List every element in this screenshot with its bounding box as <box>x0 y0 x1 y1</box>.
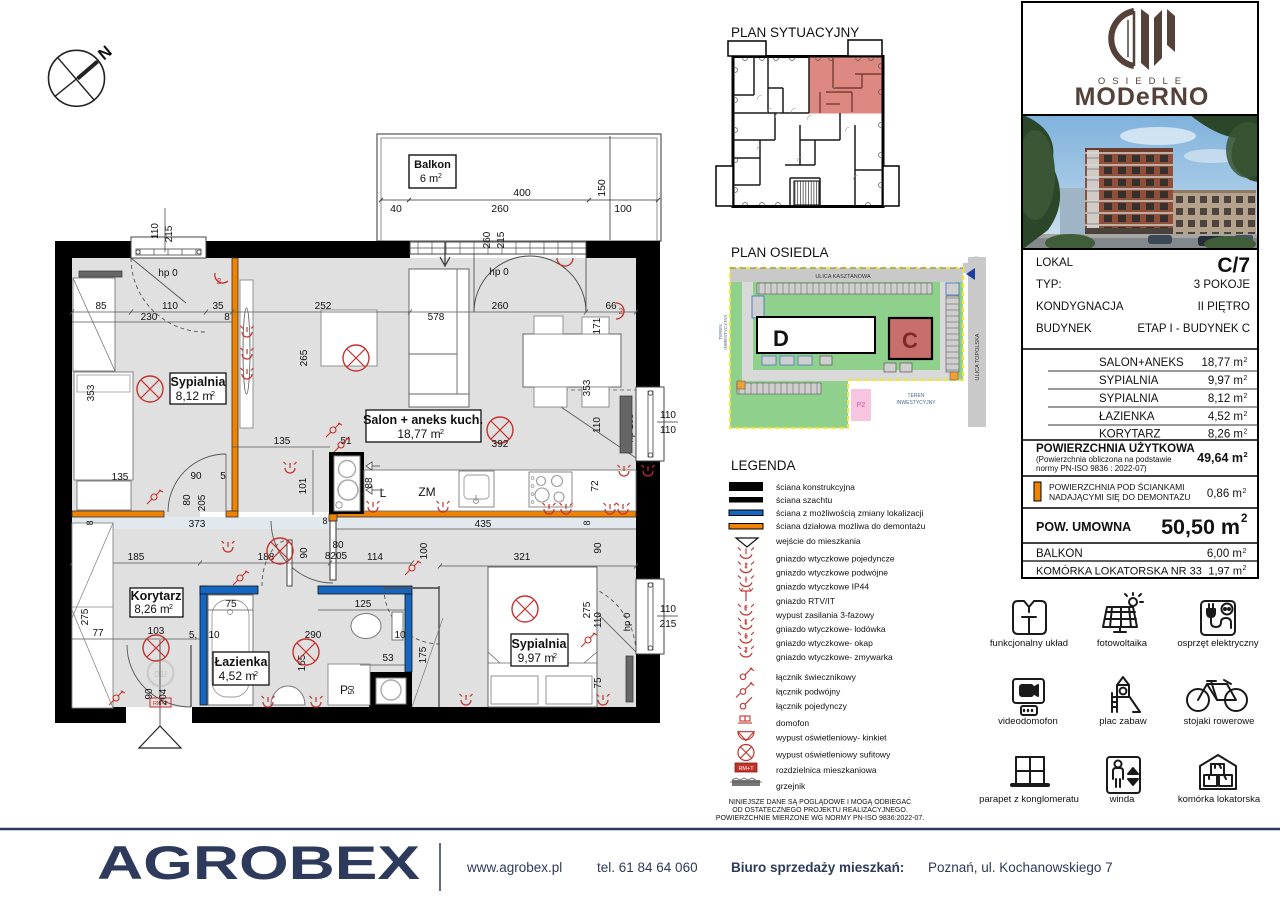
svg-text:L: L <box>380 486 387 500</box>
svg-text:wypust oświetleniowy sufitowy: wypust oświetleniowy sufitowy <box>775 750 891 760</box>
svg-text:8,26 m: 8,26 m <box>1208 429 1243 441</box>
svg-text:PLAN SYTUACYJNY: PLAN SYTUACYJNY <box>731 25 859 40</box>
svg-text:2: 2 <box>1244 357 1248 364</box>
svg-text:funkcjonalny układ: funkcjonalny układ <box>990 638 1068 649</box>
svg-text:2: 2 <box>553 651 557 660</box>
svg-text:C/7: C/7 <box>1217 254 1250 277</box>
svg-text:SYPIALNIA: SYPIALNIA <box>1099 393 1159 405</box>
svg-text:215: 215 <box>164 225 175 242</box>
svg-text:80: 80 <box>182 494 193 506</box>
svg-text:~: ~ <box>744 577 748 584</box>
svg-text:łącznik świecznikowy: łącznik świecznikowy <box>776 672 857 682</box>
svg-text:AGROBEX: AGROBEX <box>97 836 420 889</box>
svg-text:110: 110 <box>593 612 604 628</box>
svg-text:łącznik pojedynczy: łącznik pojedynczy <box>776 701 848 711</box>
svg-text:265: 265 <box>299 349 310 366</box>
svg-text:2: 2 <box>1244 429 1248 436</box>
svg-text:ściana działowa możliwa do dem: ściana działowa możliwa do demontażu <box>776 521 926 531</box>
svg-text:PLAN OSIEDLA: PLAN OSIEDLA <box>731 245 829 260</box>
svg-text:50: 50 <box>347 685 356 694</box>
svg-text:353: 353 <box>86 384 97 401</box>
svg-text:wypust zasilania 3-fazowy: wypust zasilania 3-fazowy <box>775 610 875 620</box>
svg-text:110: 110 <box>660 604 676 615</box>
svg-text:135: 135 <box>274 436 291 447</box>
svg-text:D1l: D1l <box>154 670 166 679</box>
svg-text:260: 260 <box>491 203 509 215</box>
svg-text:BALKON: BALKON <box>1036 548 1083 560</box>
svg-text:Biuro sprzedaży mieszkań:: Biuro sprzedaży mieszkań: <box>731 860 904 875</box>
svg-text:2: 2 <box>744 563 748 570</box>
svg-text:2: 2 <box>619 307 624 316</box>
svg-text:ETAP I - BUDYNEK C: ETAP I - BUDYNEK C <box>1137 323 1250 335</box>
svg-text:o: o <box>744 633 748 640</box>
svg-text:100: 100 <box>419 542 430 559</box>
svg-text:110: 110 <box>150 223 161 239</box>
svg-text:205: 205 <box>197 494 208 511</box>
svg-text:Poznań, ul. Kochanowskiego 7: Poznań, ul. Kochanowskiego 7 <box>928 860 1113 875</box>
svg-text:80: 80 <box>332 540 344 551</box>
svg-text:114: 114 <box>367 552 383 563</box>
svg-text:275: 275 <box>582 601 593 618</box>
svg-text:normy PN-ISO 9836 : 2022-07): normy PN-ISO 9836 : 2022-07) <box>1036 464 1147 473</box>
svg-text:2: 2 <box>169 604 173 611</box>
svg-text:8205: 8205 <box>325 551 348 562</box>
svg-text:260: 260 <box>492 301 509 312</box>
svg-text:stojaki rowerowe: stojaki rowerowe <box>1184 716 1255 727</box>
svg-text:72: 72 <box>590 480 601 492</box>
svg-text:2: 2 <box>254 669 258 678</box>
svg-text:5: 5 <box>220 471 226 482</box>
svg-text:gniazdo wtyczkowe- zmywarka: gniazdo wtyczkowe- zmywarka <box>776 652 893 662</box>
svg-text:4,52 m: 4,52 m <box>1208 411 1243 423</box>
svg-text:49,64 m: 49,64 m <box>1197 451 1243 465</box>
svg-text:171: 171 <box>592 317 603 334</box>
svg-text:8,12 m: 8,12 m <box>176 389 213 403</box>
svg-text:101: 101 <box>298 477 309 494</box>
svg-text:gniazdo wtyczkowe podwójne: gniazdo wtyczkowe podwójne <box>776 568 888 578</box>
svg-text:wejście do mieszkania: wejście do mieszkania <box>775 536 861 546</box>
svg-text:KONDYGNACJA: KONDYGNACJA <box>1036 301 1124 313</box>
svg-text:gniazdo wtyczkowe- okap: gniazdo wtyczkowe- okap <box>776 638 873 648</box>
svg-text:Sypialnia: Sypialnia <box>171 375 227 389</box>
svg-text:BUDYNEK: BUDYNEK <box>1036 323 1092 335</box>
svg-text:TYP:: TYP: <box>1036 279 1062 291</box>
svg-text:winda: winda <box>1109 794 1136 805</box>
svg-text:110: 110 <box>592 417 603 433</box>
svg-text:Z: Z <box>744 647 748 654</box>
svg-text:8: 8 <box>322 516 327 526</box>
svg-text:18,77 m: 18,77 m <box>1201 357 1243 369</box>
svg-text:ULICA TOPOLSKA: ULICA TOPOLSKA <box>975 333 981 380</box>
svg-text:RM+T: RM+T <box>738 766 754 772</box>
svg-text:L: L <box>744 619 748 626</box>
svg-text:85: 85 <box>95 301 107 312</box>
svg-text:2: 2 <box>1243 488 1247 495</box>
svg-text:35: 35 <box>212 301 224 312</box>
svg-text:4,52 m: 4,52 m <box>219 669 256 683</box>
svg-text:II PIĘTRO: II PIĘTRO <box>1198 301 1250 313</box>
svg-text:INWESTYCYJNY: INWESTYCYJNY <box>723 314 728 349</box>
svg-text:C: C <box>902 328 918 353</box>
svg-text:ściana szachtu: ściana szachtu <box>776 495 832 505</box>
svg-text:9,97 m: 9,97 m <box>518 651 555 665</box>
svg-text:10: 10 <box>394 630 406 641</box>
svg-text:ściana z możliwością zmiany lo: ściana z możliwością zmiany lokalizacji <box>776 508 923 518</box>
svg-text:373: 373 <box>189 519 206 530</box>
svg-text:fotowoltaika: fotowoltaika <box>1097 638 1148 649</box>
svg-text:Łazienka: Łazienka <box>215 655 269 669</box>
svg-text:100: 100 <box>614 203 632 215</box>
svg-text:353: 353 <box>582 379 593 396</box>
svg-text:6 m: 6 m <box>420 173 438 185</box>
svg-text:SALON+ANEKS: SALON+ANEKS <box>1099 357 1184 369</box>
svg-text:MODeRNO: MODeRNO <box>1075 83 1210 111</box>
svg-text:SYPIALNIA: SYPIALNIA <box>1099 375 1159 387</box>
svg-text:POW. UMOWNA: POW. UMOWNA <box>1036 520 1131 534</box>
svg-text:252: 252 <box>315 301 332 312</box>
svg-text:domofon: domofon <box>776 718 809 728</box>
svg-text:NADAJĄCYMI SIĘ DO DEMONTAŻU: NADAJĄCYMI SIĘ DO DEMONTAŻU <box>1049 492 1191 502</box>
svg-text:8: 8 <box>85 520 95 525</box>
svg-text:230: 230 <box>141 312 158 323</box>
svg-text:88: 88 <box>364 477 375 489</box>
svg-text:INWESTYCYJNY: INWESTYCYJNY <box>896 400 936 406</box>
svg-text:215: 215 <box>496 231 507 248</box>
svg-text:POWIERZCHNIE MIERZONE WG NORMY: POWIERZCHNIE MIERZONE WG NORMY PN-ISO 98… <box>716 815 924 822</box>
svg-text:215: 215 <box>660 619 677 630</box>
svg-text:2: 2 <box>440 427 444 436</box>
svg-text:175: 175 <box>418 646 429 663</box>
svg-text:KORYTARZ: KORYTARZ <box>1099 429 1161 441</box>
svg-text:hp 0: hp 0 <box>158 268 178 279</box>
svg-text:8: 8 <box>582 520 592 525</box>
svg-text:Korytarz: Korytarz <box>131 589 182 603</box>
svg-text:50,50 m: 50,50 m <box>1161 515 1240 539</box>
svg-text:gniazdo wtyczkowe pojedyncze: gniazdo wtyczkowe pojedyncze <box>776 553 895 563</box>
svg-text:6,00 m: 6,00 m <box>1207 548 1242 560</box>
svg-text:1,97 m: 1,97 m <box>1208 566 1242 578</box>
svg-text:150: 150 <box>596 179 608 197</box>
svg-text:2: 2 <box>1244 393 1248 400</box>
svg-text:gniazdo wtyczkowe IP44: gniazdo wtyczkowe IP44 <box>776 582 869 592</box>
svg-text:75: 75 <box>593 677 604 689</box>
svg-text:75: 75 <box>225 599 237 610</box>
svg-text:400: 400 <box>513 187 531 199</box>
svg-text:ZM: ZM <box>418 485 435 499</box>
svg-text:rozdzielnica mieszkaniowa: rozdzielnica mieszkaniowa <box>776 765 877 775</box>
svg-text:185: 185 <box>128 552 145 563</box>
svg-text:2: 2 <box>211 389 215 398</box>
svg-text:grzejnik: grzejnik <box>776 781 806 791</box>
svg-text:77: 77 <box>92 628 104 639</box>
svg-text:18,77 m: 18,77 m <box>397 427 440 441</box>
svg-text:LEGENDA: LEGENDA <box>731 458 796 473</box>
svg-text:hp 0: hp 0 <box>489 267 509 278</box>
svg-text:90: 90 <box>190 471 202 482</box>
svg-text:osprzęt elektryczny: osprzęt elektryczny <box>1177 638 1259 649</box>
svg-text:321: 321 <box>514 552 531 563</box>
svg-text:435: 435 <box>475 519 492 530</box>
svg-text:2: 2 <box>1244 375 1248 382</box>
svg-text:NINIEJSZE DANE SĄ POGLĄDOWE I: NINIEJSZE DANE SĄ POGLĄDOWE I MOGĄ ODBIE… <box>729 797 911 806</box>
svg-text:110: 110 <box>660 425 676 436</box>
svg-text:2: 2 <box>438 173 442 180</box>
svg-text:F: F <box>744 605 748 612</box>
svg-text:110: 110 <box>660 410 676 421</box>
svg-text:Salon + aneks kuch.: Salon + aneks kuch. <box>363 413 483 427</box>
svg-text:3 POKOJE: 3 POKOJE <box>1194 279 1251 291</box>
svg-text:D: D <box>773 326 789 351</box>
svg-text:gniazdo RTV/IT: gniazdo RTV/IT <box>776 596 835 606</box>
svg-text:gniazdo wtyczkowe- lodówka: gniazdo wtyczkowe- lodówka <box>776 624 886 634</box>
svg-text:578: 578 <box>428 312 445 323</box>
svg-text:135: 135 <box>112 472 129 483</box>
svg-text:2: 2 <box>1244 450 1248 459</box>
svg-text:P2: P2 <box>857 402 866 409</box>
svg-text:komórka lokatorska: komórka lokatorska <box>1178 794 1261 805</box>
svg-text:Balkon: Balkon <box>414 159 451 171</box>
svg-text:wypust oświetleniowy- kinkiet: wypust oświetleniowy- kinkiet <box>775 733 887 743</box>
svg-text:125: 125 <box>355 599 372 610</box>
svg-text:tel. 61 84 64 060: tel. 61 84 64 060 <box>597 860 698 875</box>
svg-text:videodomofon: videodomofon <box>998 716 1058 727</box>
svg-text:8: 8 <box>224 312 230 323</box>
svg-text:2: 2 <box>1243 565 1247 572</box>
svg-text:TEREN: TEREN <box>908 393 925 399</box>
svg-text:LOKAL: LOKAL <box>1036 257 1074 269</box>
svg-text:OD OSTATECZNEGO PROJEKTU REALI: OD OSTATECZNEGO PROJEKTU REALIZACYJNEGO. <box>732 807 908 814</box>
svg-text:8,12 m: 8,12 m <box>1208 393 1243 405</box>
svg-text:0,86 m: 0,86 m <box>1207 488 1242 500</box>
svg-text:2: 2 <box>1241 513 1247 525</box>
svg-text:ŁAZIENKA: ŁAZIENKA <box>1099 411 1155 423</box>
svg-text:40: 40 <box>390 203 402 215</box>
svg-text:9,97 m: 9,97 m <box>1208 375 1243 387</box>
svg-text:260: 260 <box>482 231 493 248</box>
svg-text:www.agrobex.pl: www.agrobex.pl <box>466 860 562 875</box>
svg-text:90: 90 <box>593 542 604 554</box>
svg-text:90: 90 <box>299 547 310 559</box>
svg-text:ULICA KASZTANOWA: ULICA KASZTANOWA <box>815 274 871 280</box>
svg-text:(Powierzchnia obliczona na pod: (Powierzchnia obliczona na podstawie <box>1036 455 1172 464</box>
svg-text:POWIERZCHNIA UŻYTKOWA: POWIERZCHNIA UŻYTKOWA <box>1036 442 1195 455</box>
svg-text:łącznik podwójny: łącznik podwójny <box>776 687 841 697</box>
svg-text:275: 275 <box>80 608 91 625</box>
svg-text:66: 66 <box>605 301 617 312</box>
svg-text:POWIERZCHNIA POD ŚCIANKAMI: POWIERZCHNIA POD ŚCIANKAMI <box>1049 481 1185 492</box>
svg-text:ściana konstrukcyjna: ściana konstrukcyjna <box>776 482 855 492</box>
svg-text:392: 392 <box>492 439 509 450</box>
svg-text:parapet z konglomeratu: parapet z konglomeratu <box>979 794 1079 805</box>
svg-text:2: 2 <box>217 277 222 286</box>
svg-text:hp 0: hp 0 <box>622 613 633 632</box>
svg-text:RM+T: RM+T <box>153 701 169 707</box>
svg-text:Sypialnia: Sypialnia <box>512 637 568 651</box>
svg-text:KOMÓRKA LOKATORSKA NR 33: KOMÓRKA LOKATORSKA NR 33 <box>1036 565 1202 578</box>
svg-text:53: 53 <box>382 653 394 664</box>
svg-text:2: 2 <box>1244 411 1248 418</box>
svg-text:plac zabaw: plac zabaw <box>1099 716 1147 727</box>
svg-text:110: 110 <box>162 301 178 312</box>
svg-text:8,26 m: 8,26 m <box>134 604 169 616</box>
svg-text:2: 2 <box>1243 548 1247 555</box>
svg-text:10: 10 <box>208 630 220 641</box>
